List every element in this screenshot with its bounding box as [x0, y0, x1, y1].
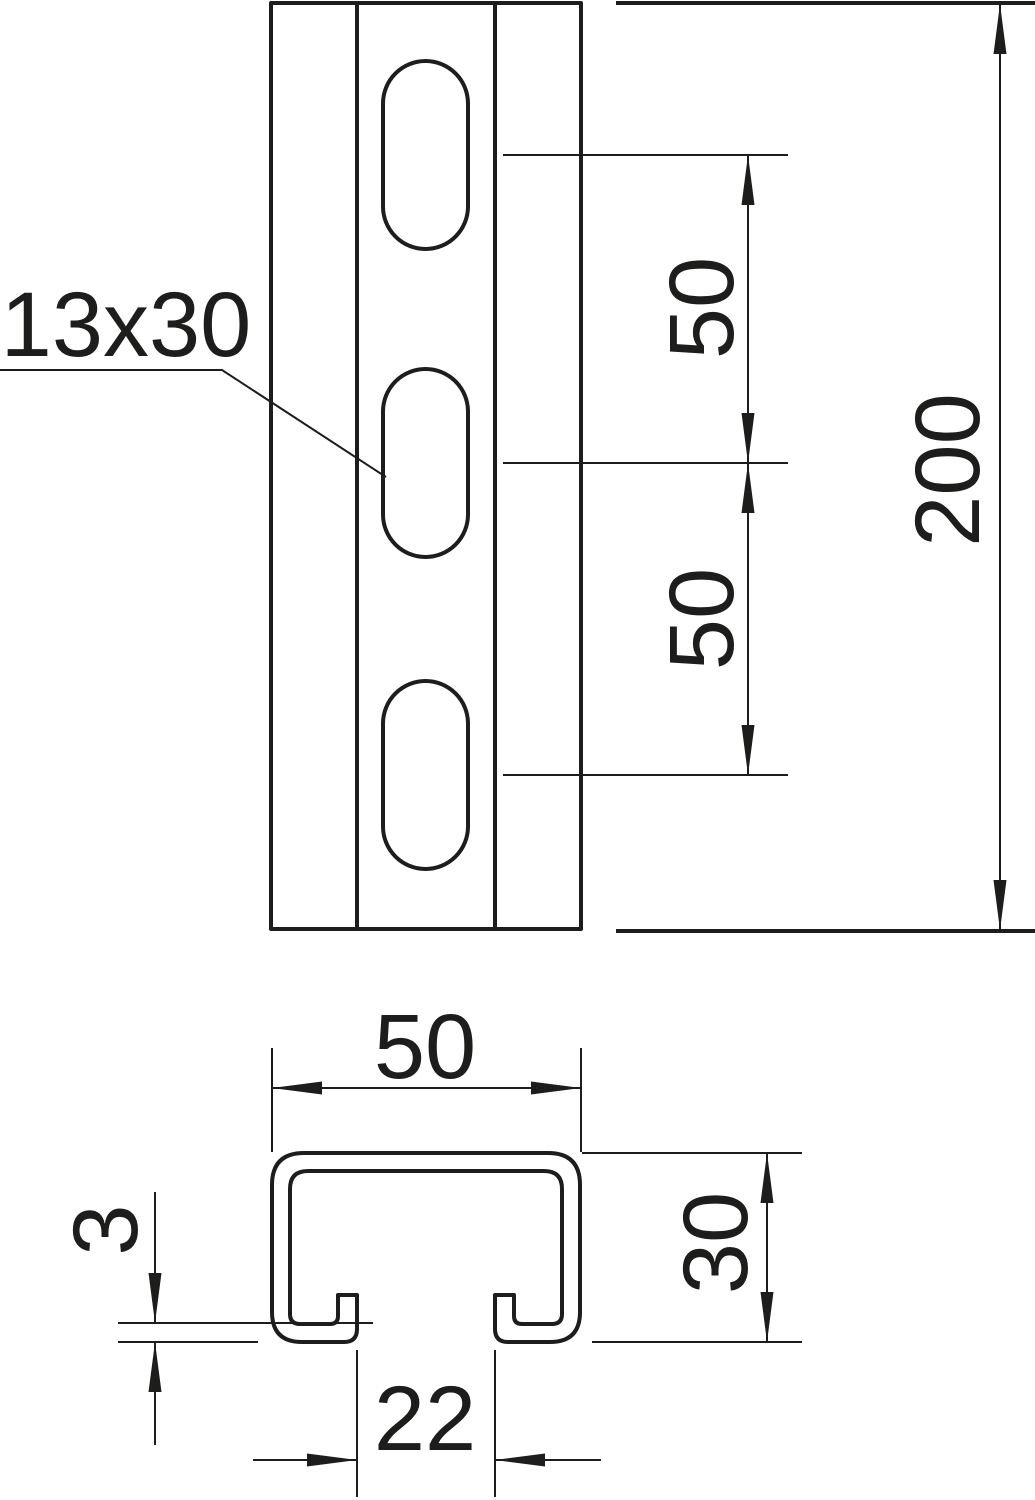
slot-label-leader-line — [0, 370, 386, 477]
arrowhead-left — [272, 1082, 322, 1095]
arrowhead-up — [742, 155, 755, 205]
slot-hole-middle — [383, 369, 468, 557]
dimension-value: 50 — [374, 996, 476, 1098]
dimension-profile-height: 30 — [582, 1153, 802, 1342]
dimension-value: 3 — [55, 1204, 157, 1255]
dimension-total-length: 200 — [616, 3, 1035, 931]
slot-hole-bottom — [383, 681, 468, 869]
dimension-value: 200 — [897, 393, 999, 547]
technical-drawing-canvas: 13x30 50 50 200 — [0, 0, 1035, 1500]
arrowhead-down — [994, 880, 1007, 930]
cross-section-view: 50 30 3 22 — [55, 996, 802, 1497]
dimension-outer-width: 50 — [272, 996, 581, 1152]
arrowhead-right — [307, 1454, 357, 1467]
dimension-slot-spacing-lower: 50 — [651, 463, 755, 775]
arrowhead-down — [742, 413, 755, 463]
arrowhead-right — [531, 1082, 581, 1095]
drawing-page: 13x30 50 50 200 — [0, 0, 1035, 1500]
dimension-value: 22 — [374, 1368, 476, 1470]
slot-hole-top — [383, 61, 468, 249]
dimension-material-thickness: 3 — [55, 1192, 373, 1445]
dimension-value: 30 — [665, 1192, 767, 1294]
arrowhead-down — [149, 1273, 162, 1323]
slot-size-label: 13x30 — [1, 274, 252, 376]
dimension-value: 50 — [651, 568, 753, 670]
arrowhead-up — [149, 1342, 162, 1392]
arrowhead-up — [994, 4, 1007, 54]
dimension-channel-opening: 22 — [253, 1350, 601, 1497]
arrowhead-down — [761, 1292, 774, 1342]
arrowhead-down — [742, 725, 755, 775]
dimension-value: 50 — [651, 257, 753, 359]
rail-outline — [271, 3, 581, 929]
profile-outline — [272, 1153, 580, 1342]
arrowhead-up — [742, 463, 755, 513]
front-view: 13x30 50 50 200 — [0, 3, 1035, 931]
dimension-slot-spacing-upper: 50 — [651, 155, 755, 463]
arrowhead-left — [495, 1454, 545, 1467]
